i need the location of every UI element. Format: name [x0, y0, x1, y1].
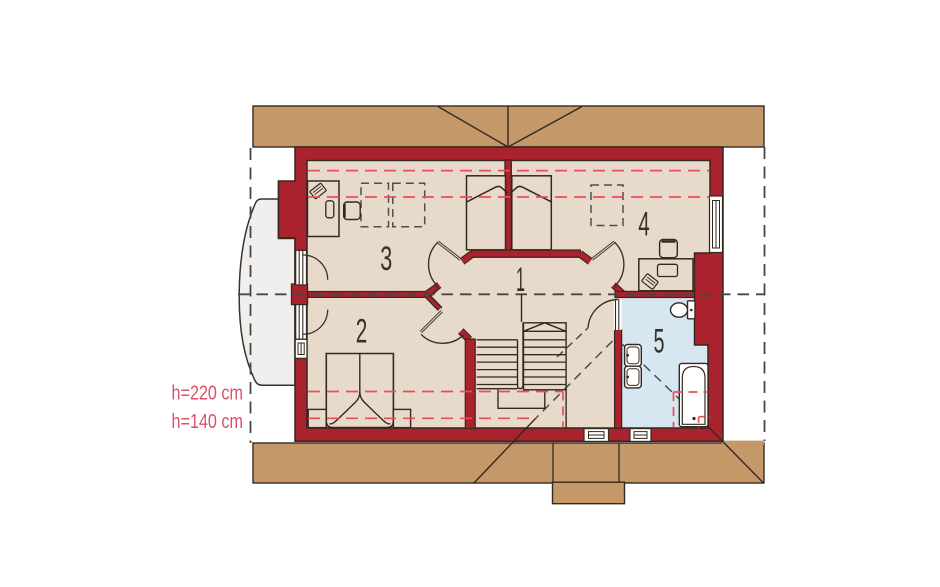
svg-text:1: 1	[516, 261, 525, 299]
svg-text:2: 2	[356, 313, 368, 351]
svg-text:4: 4	[638, 206, 650, 244]
svg-text:h=140 cm: h=140 cm	[172, 410, 244, 433]
svg-text:3: 3	[380, 240, 392, 278]
svg-text:h=220 cm: h=220 cm	[172, 382, 244, 405]
svg-text:5: 5	[654, 323, 665, 361]
